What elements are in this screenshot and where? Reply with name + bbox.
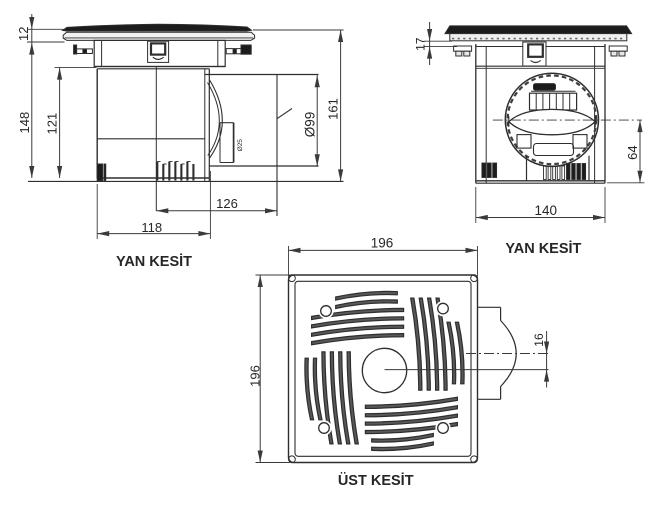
svg-text:196: 196 (371, 236, 394, 251)
svg-text:196: 196 (248, 365, 263, 387)
svg-text:ÜST KESİT: ÜST KESİT (338, 472, 414, 489)
svg-text:64: 64 (625, 145, 640, 159)
svg-text:121: 121 (45, 113, 60, 135)
svg-text:126: 126 (216, 196, 238, 211)
svg-text:12: 12 (16, 27, 31, 41)
svg-text:140: 140 (535, 203, 558, 218)
svg-text:161: 161 (326, 98, 341, 120)
svg-text:YAN KESİT: YAN KESİT (505, 240, 581, 257)
svg-text:148: 148 (17, 112, 32, 134)
svg-text:16: 16 (532, 333, 546, 347)
svg-text:Ø25: Ø25 (237, 139, 244, 152)
svg-text:17: 17 (414, 37, 428, 51)
svg-text:YAN KESİT: YAN KESİT (116, 253, 192, 270)
svg-text:118: 118 (141, 220, 162, 235)
svg-text:Ø99: Ø99 (303, 112, 318, 138)
